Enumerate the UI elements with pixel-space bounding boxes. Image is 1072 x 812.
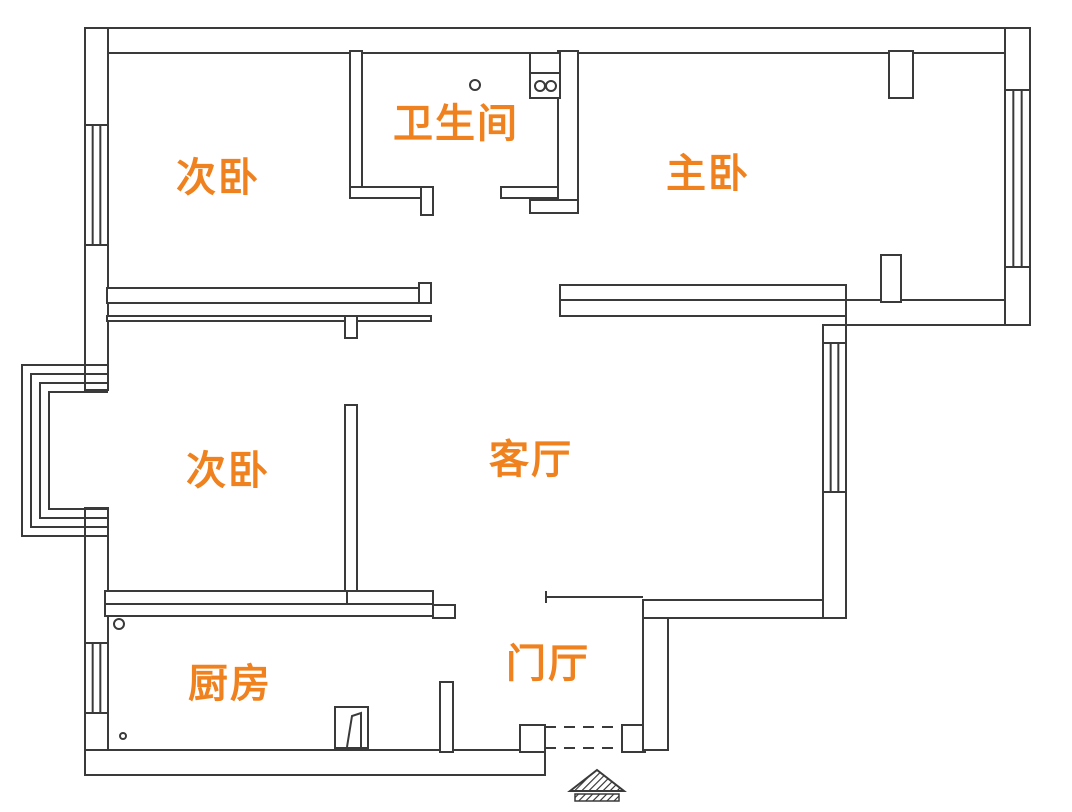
kitchen-top-wall (105, 604, 433, 616)
bedroom-top-wall-hook (419, 283, 431, 303)
bedroom-middle-wall-stub (345, 316, 357, 338)
kitchen-top-wall-step (433, 605, 455, 618)
room-label-master-bedroom: 主卧 (666, 151, 750, 197)
bedroom-top-left-window (85, 125, 108, 245)
corridor-thin-wall (107, 316, 431, 321)
bathroom-sink-unit-bowl-1 (546, 81, 556, 91)
bedroom-middle-bottom-wall (105, 591, 347, 604)
kitchen-circle-small (120, 733, 126, 739)
bathroom-drain-circle (470, 80, 480, 90)
entry-right-block (622, 725, 645, 752)
kitchen-top-wall-upper (347, 591, 433, 604)
kitchen-left-window (85, 643, 108, 713)
bedroom-middle-right-wall (345, 405, 357, 605)
floor-plan-svg: 次卧卫生间主卧次卧客厅厨房门厅 (0, 0, 1072, 812)
bathroom-sink-unit-bowl-0 (535, 81, 545, 91)
hall-right-wall (643, 600, 668, 750)
living-right-window (823, 343, 846, 492)
entrance-arrow-marker-triangle (570, 770, 624, 791)
room-label-living-room: 客厅 (489, 437, 573, 483)
room-label-entry-hall: 门厅 (506, 641, 590, 687)
entrance-arrow-marker-bar (575, 794, 619, 801)
bathroom-door-stub (421, 187, 433, 215)
bedroom-top-right-wall (350, 51, 362, 197)
room-label-bedroom-top: 次卧 (176, 155, 260, 201)
bay-window-line-3 (49, 392, 108, 509)
kitchen-door-symbol-frame (335, 707, 368, 748)
top-wall (85, 28, 1030, 53)
kitchen-circle-large (114, 619, 124, 629)
entry-left-jamb (520, 725, 545, 752)
bedroom-top-bottom-wall (107, 288, 431, 303)
living-bottom-wall (643, 600, 846, 618)
bay-window-line-1 (31, 374, 108, 527)
bathroom-sink-unit (530, 53, 560, 98)
kitchen-right-wall (440, 682, 453, 752)
master-right-window (1005, 90, 1030, 267)
master-top-pier (889, 51, 913, 98)
room-label-kitchen: 厨房 (188, 661, 272, 707)
left-wall-lower (85, 508, 108, 775)
master-bottom-outer-wall (846, 300, 1030, 325)
floor-plan: 次卧卫生间主卧次卧客厅厨房门厅 (0, 0, 1072, 812)
room-label-bathroom: 卫生间 (393, 101, 519, 147)
bay-window-line-2 (40, 383, 108, 518)
room-label-bedroom-middle: 次卧 (186, 448, 270, 494)
bathroom-master-wall-foot (530, 200, 578, 213)
bottom-wall (85, 750, 545, 775)
bathroom-bottom-wall-right (501, 187, 558, 198)
master-door-pier (881, 255, 901, 302)
